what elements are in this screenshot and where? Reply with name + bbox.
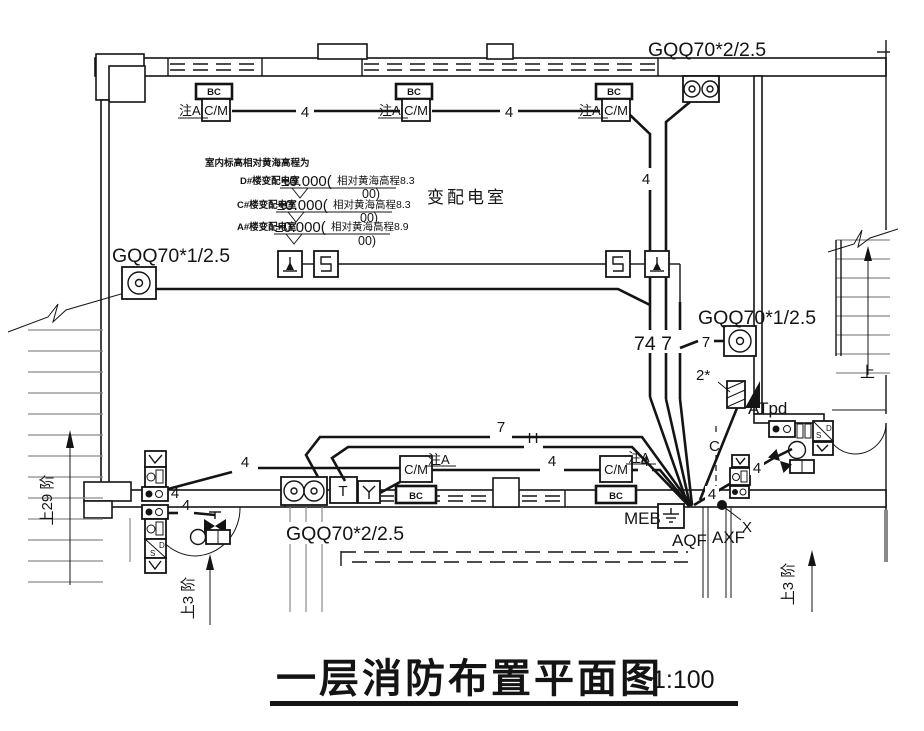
wire-count: 4 bbox=[241, 454, 249, 471]
wire-count: 4 bbox=[753, 460, 761, 477]
cm-label: C/M bbox=[604, 462, 628, 477]
wire-count: 4 bbox=[641, 453, 649, 470]
wire-count: 7 bbox=[702, 334, 710, 351]
bc-label: BC bbox=[409, 491, 423, 502]
elevation-value-c: ±0.000( bbox=[277, 197, 328, 214]
cm-label: C/M bbox=[604, 103, 628, 118]
wire-count: 4 bbox=[642, 171, 650, 188]
t-box-label: T bbox=[338, 483, 347, 500]
butterfly-valve-icon bbox=[191, 512, 231, 545]
x-leader bbox=[724, 507, 741, 520]
meb-label: MEB bbox=[624, 509, 661, 528]
cm-label: C/M bbox=[404, 462, 428, 477]
alarm-bell-icon bbox=[683, 76, 719, 102]
break-line bbox=[8, 292, 128, 332]
elevation-value-d: ±0.000( bbox=[281, 173, 332, 190]
riser-bundle-label: 74 7 bbox=[634, 333, 672, 355]
cable-label-bottom: GQQ70*2/2.5 bbox=[286, 523, 404, 545]
up-arrow-bottom-left bbox=[206, 554, 214, 625]
canopy-dashed-outline bbox=[341, 551, 688, 566]
left-wall bbox=[101, 100, 109, 492]
cable-label-mid-right: GQQ70*1/2.5 bbox=[698, 307, 816, 329]
up-arrow bbox=[66, 430, 74, 585]
note-a-label: 注A bbox=[379, 103, 401, 118]
stair-bottom-left-label: 上3 阶 bbox=[180, 577, 197, 620]
elevation-datum-a: 相对黄海高程8.9 bbox=[331, 220, 409, 233]
stair-upper-right bbox=[828, 229, 898, 375]
cable-label-top: GQQ70*2/2.5 bbox=[648, 39, 766, 61]
speaker-icon bbox=[278, 251, 302, 277]
note-a-label: 注A bbox=[579, 103, 601, 118]
cm-label: C/M bbox=[204, 103, 228, 118]
elevation-note: 室内标高相对黄海高程为 D#楼变配电室 ±0.000( 相对黄海高程8.3 00… bbox=[205, 157, 415, 248]
floor-plan-drawing: 室内标高相对黄海高程为 D#楼变配电室 ±0.000( 相对黄海高程8.3 00… bbox=[0, 0, 924, 731]
bottom-wall bbox=[88, 478, 886, 507]
manual-call-point-icon bbox=[606, 251, 630, 277]
axf-label: AXF bbox=[712, 528, 745, 547]
wire-count: H bbox=[528, 430, 539, 447]
two-star-label: 2* bbox=[696, 367, 710, 384]
stair-up-label: 上 bbox=[860, 364, 875, 381]
stair-bottom-right-label: 上3 阶 bbox=[780, 563, 797, 606]
stair-left bbox=[8, 292, 128, 585]
s-label: S bbox=[816, 431, 821, 440]
wire-count: 4 bbox=[301, 104, 309, 121]
wire-count: 7 bbox=[497, 419, 505, 436]
elevation-value-a: ±0.000( bbox=[275, 219, 326, 236]
alarm-gong-left-icon bbox=[122, 267, 156, 299]
wire-count: 4 bbox=[171, 485, 179, 502]
top-left-column bbox=[96, 54, 145, 102]
double-door-swing-right bbox=[825, 423, 886, 454]
drawing-title: 一层消防布置平面图 bbox=[276, 657, 663, 701]
manual-call-point-icon bbox=[314, 251, 338, 277]
cm-label: C/M bbox=[404, 103, 428, 118]
d-label: D bbox=[159, 541, 165, 550]
elevation-datum-c: 相对黄海高程8.3 bbox=[333, 198, 411, 211]
bc-label: BC bbox=[407, 87, 421, 98]
wire-mid-run bbox=[156, 264, 680, 305]
up-arrow-bottom-right bbox=[808, 550, 816, 612]
wire-count: 4 bbox=[182, 497, 190, 514]
wire-count: 4 bbox=[505, 104, 513, 121]
splitter-y-icon bbox=[358, 481, 380, 503]
x-label: X bbox=[742, 519, 752, 536]
ground-terminal-meb-icon bbox=[658, 504, 684, 528]
d-label: D bbox=[826, 424, 832, 433]
title-underline bbox=[270, 701, 738, 706]
c-riser-label: C bbox=[709, 438, 720, 455]
corridor-wall-right bbox=[754, 76, 762, 414]
alarm-bell-icon bbox=[281, 477, 327, 505]
top-wall bbox=[95, 44, 886, 76]
up-arrow bbox=[864, 246, 872, 375]
bc-label: BC bbox=[609, 491, 623, 502]
note-a-label: 注A bbox=[179, 103, 201, 118]
bottom-left-wall-bits bbox=[84, 482, 131, 562]
elevation-cont-a: 00) bbox=[358, 234, 376, 248]
drawing-title-block: 一层消防布置平面图 1:100 bbox=[270, 657, 738, 706]
column bbox=[493, 478, 519, 507]
wire-count: 4 bbox=[708, 486, 716, 503]
riser-pipes-below bbox=[703, 507, 731, 598]
bc-label: BC bbox=[207, 87, 221, 98]
bc-label: BC bbox=[607, 87, 621, 98]
note-a-label: 注A bbox=[428, 452, 450, 467]
column bbox=[487, 44, 513, 59]
wire-count: 4 bbox=[548, 453, 556, 470]
alarm-gong-right-icon bbox=[724, 326, 756, 356]
s-label: S bbox=[150, 549, 155, 558]
elevation-datum-d: 相对黄海高程8.3 bbox=[337, 174, 415, 187]
drawing-scale: 1:100 bbox=[652, 666, 715, 694]
column bbox=[318, 44, 367, 59]
aqf-label: AQF bbox=[672, 531, 707, 550]
speaker-icon bbox=[645, 251, 669, 277]
stair-left-label: 上29 阶 bbox=[39, 475, 56, 526]
plan-canvas: 室内标高相对黄海高程为 D#楼变配电室 ±0.000( 相对黄海高程8.3 00… bbox=[0, 0, 924, 731]
elevation-heading: 室内标高相对黄海高程为 bbox=[205, 157, 310, 169]
atpd-label: ATpd bbox=[748, 399, 787, 418]
room-name: 变配电室 bbox=[427, 188, 507, 207]
cable-label-left: GQQ70*1/2.5 bbox=[112, 245, 230, 267]
